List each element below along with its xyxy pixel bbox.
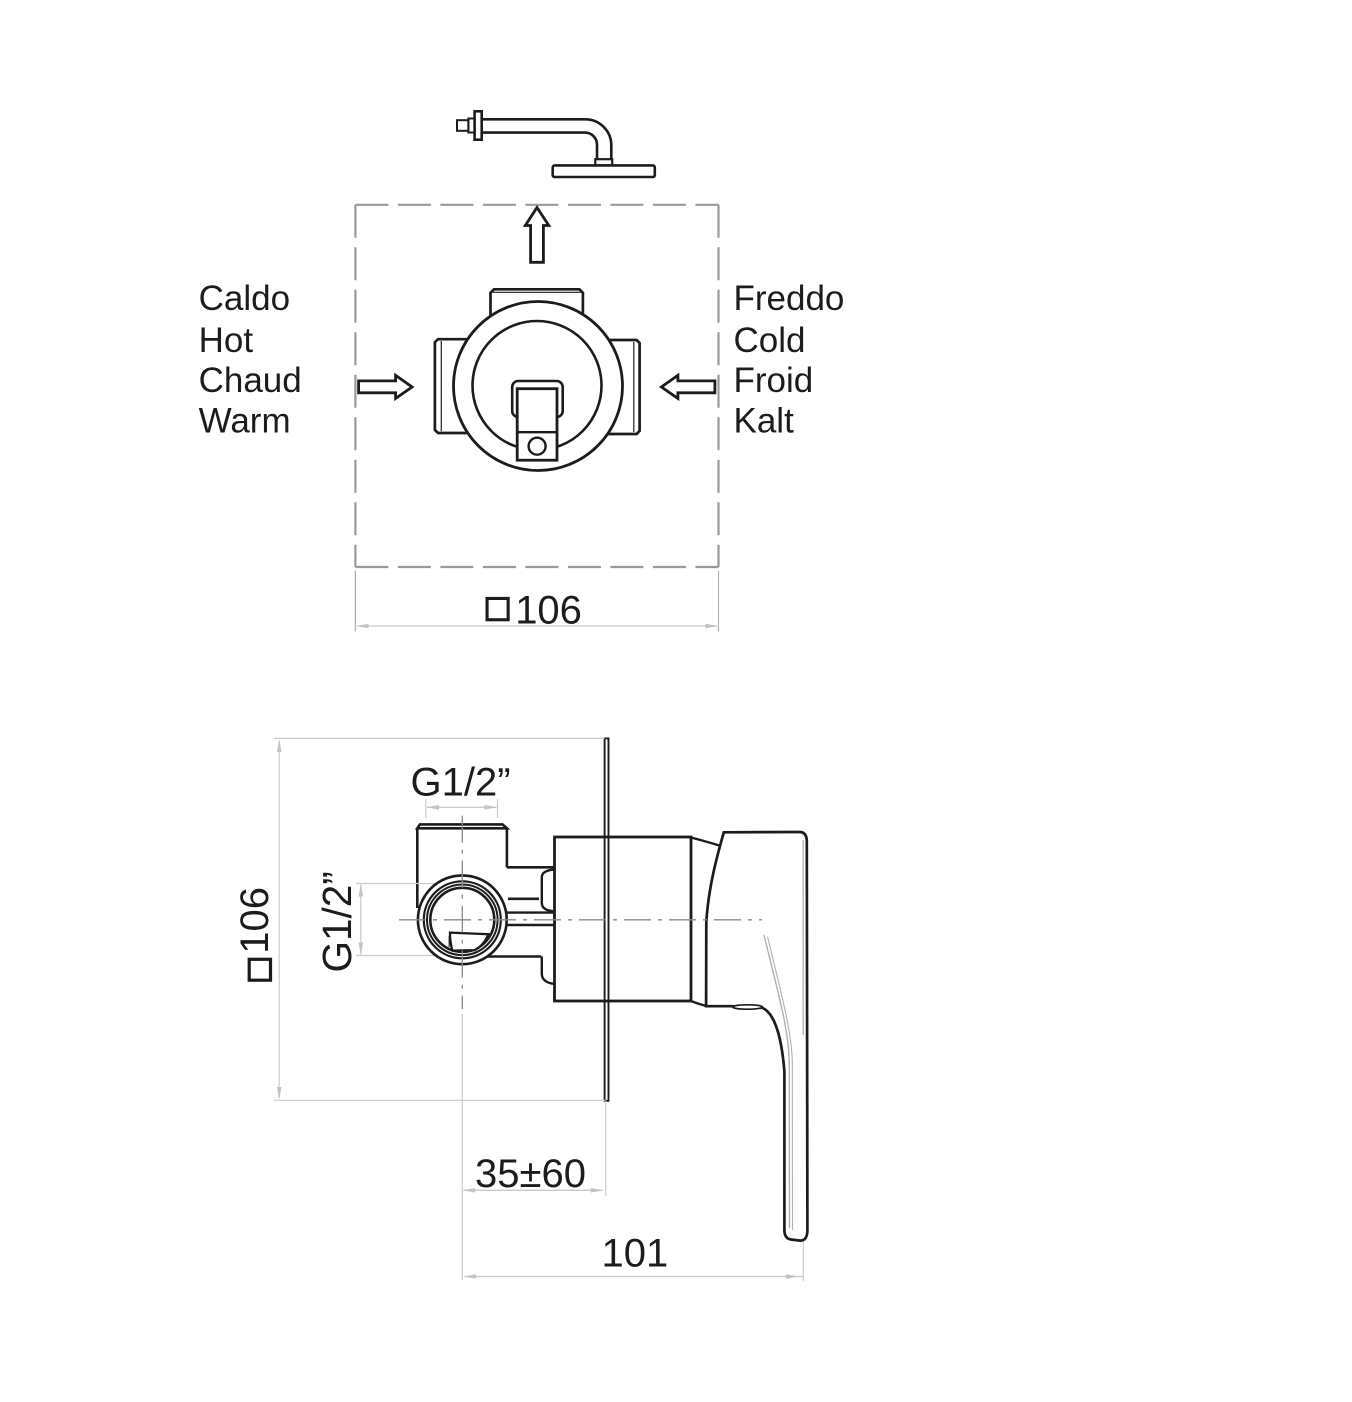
svg-text:G1/2”: G1/2” <box>314 871 360 972</box>
svg-text:Cold: Cold <box>734 321 806 360</box>
svg-text:35±60: 35±60 <box>475 1152 586 1196</box>
svg-text:Froid: Froid <box>734 361 814 400</box>
svg-text:101: 101 <box>602 1232 669 1276</box>
svg-text:G1/2”: G1/2” <box>411 760 511 804</box>
svg-text:Hot: Hot <box>199 321 254 360</box>
svg-text:106: 106 <box>515 589 582 633</box>
svg-text:Warm: Warm <box>199 401 291 440</box>
svg-text:Caldo: Caldo <box>199 279 290 318</box>
svg-text:Kalt: Kalt <box>734 401 795 440</box>
svg-text:106: 106 <box>233 887 277 954</box>
svg-text:Chaud: Chaud <box>199 361 302 400</box>
svg-text:Freddo: Freddo <box>734 279 845 318</box>
